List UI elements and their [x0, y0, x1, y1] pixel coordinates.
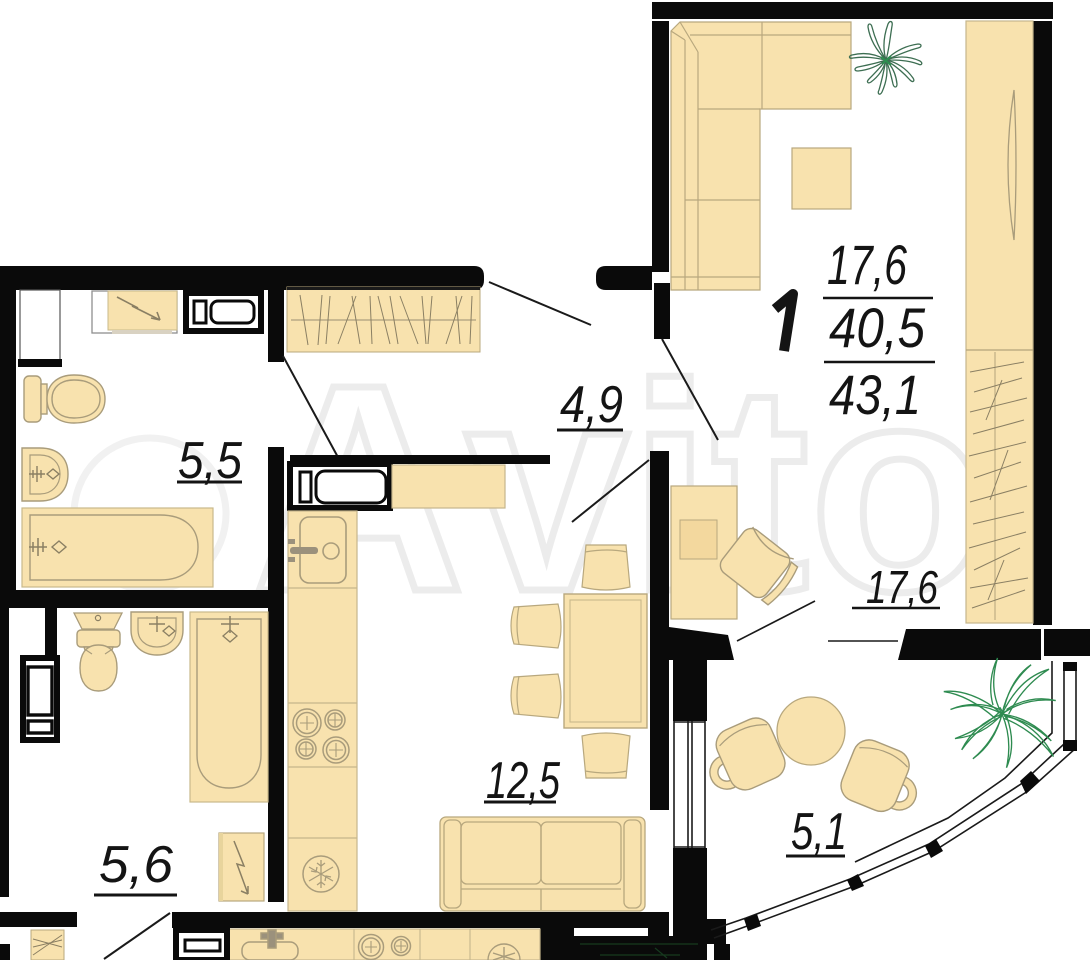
svg-text:40,5: 40,5: [829, 296, 926, 359]
svg-text:17,6: 17,6: [866, 561, 938, 613]
svg-text:17,6: 17,6: [827, 233, 908, 296]
svg-text:4,9: 4,9: [560, 376, 623, 434]
svg-text:43,1: 43,1: [829, 363, 921, 426]
svg-text:5,1: 5,1: [791, 803, 847, 861]
svg-text:5,6: 5,6: [99, 836, 173, 894]
